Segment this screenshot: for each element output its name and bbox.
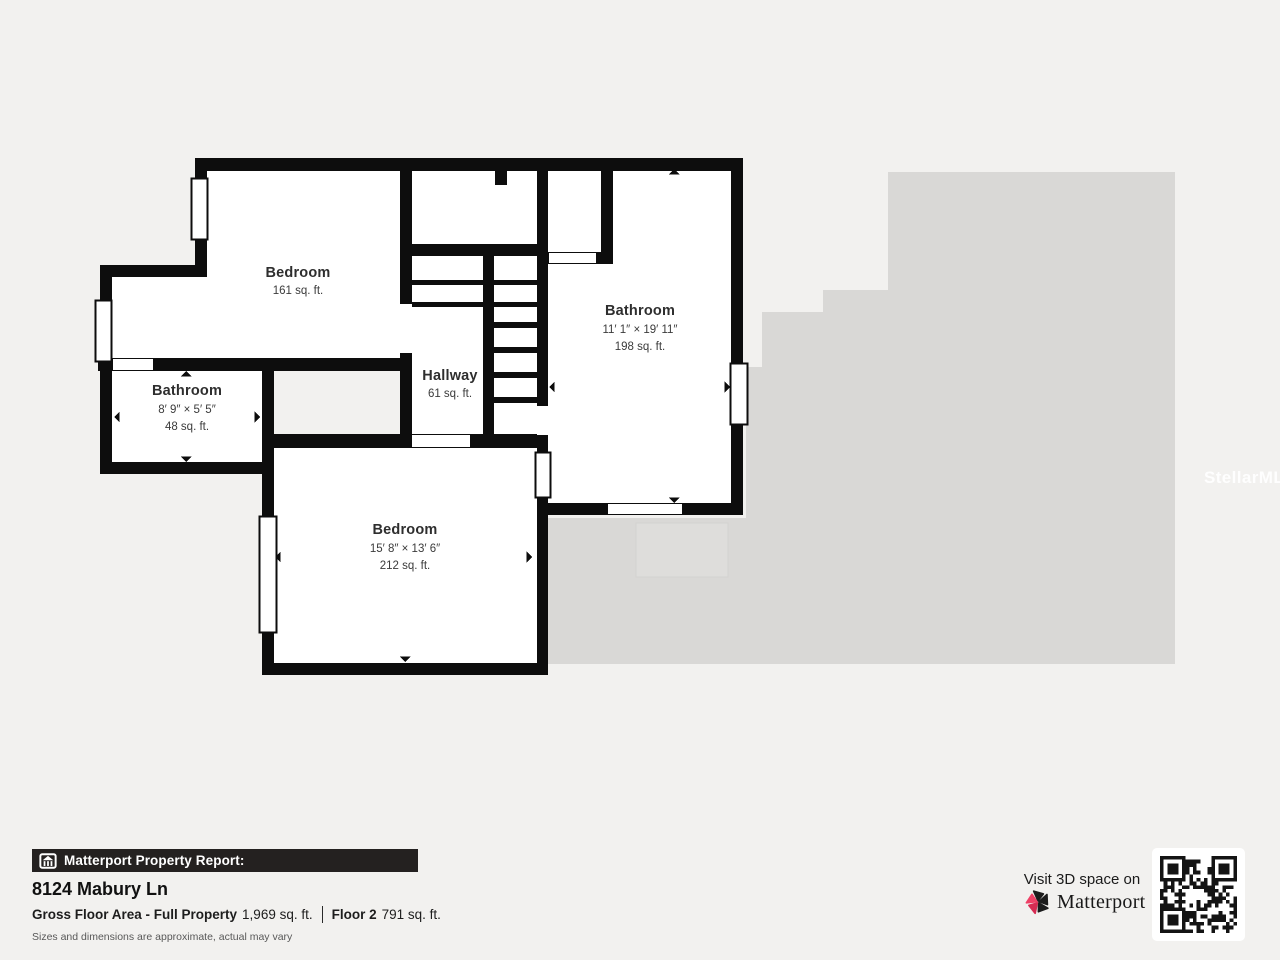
room-label-hallway: Hallway 61 sq. ft. — [422, 367, 477, 402]
gross-area-value: 1,969 sq. ft. — [242, 907, 313, 922]
room-dimensions: 8′ 9″ × 5′ 5″ — [152, 401, 222, 419]
room-name: Bedroom — [265, 264, 330, 283]
qr-code — [1152, 848, 1245, 941]
floor-plan-drawing — [0, 0, 1280, 960]
qr-code-pattern — [1160, 856, 1237, 933]
property-address: 8124 Mabury Ln — [32, 879, 168, 900]
room-area: 61 sq. ft. — [422, 386, 477, 402]
room-label-bedroom-2: Bedroom 15′ 8″ × 13′ 6″ 212 sq. ft. — [370, 521, 440, 574]
room-area: 198 sq. ft. — [602, 339, 677, 355]
room-label-bathroom-1: Bathroom 8′ 9″ × 5′ 5″ 48 sq. ft. — [152, 382, 222, 435]
house-icon — [39, 853, 57, 869]
silhouette-inner-patch — [636, 523, 728, 577]
report-bar-title: Matterport Property Report: — [64, 853, 244, 868]
mls-watermark: StellarMLS — [1204, 468, 1280, 488]
floor-label: Floor 2 — [332, 907, 377, 922]
matterport-wordmark: Matterport — [1057, 891, 1146, 914]
floor-area-stats: Gross Floor Area - Full Property 1,969 s… — [32, 906, 441, 923]
matterport-pinwheel-icon — [1025, 889, 1051, 915]
visit-3d-text: Visit 3D space on — [1023, 871, 1141, 888]
room-label-bathroom-2: Bathroom 11′ 1″ × 19′ 11″ 198 sq. ft. — [602, 302, 677, 355]
gross-area-label: Gross Floor Area - Full Property — [32, 907, 237, 922]
room-area: 161 sq. ft. — [265, 283, 330, 299]
room-label-bedroom-1: Bedroom 161 sq. ft. — [265, 264, 330, 299]
floor-area-value: 791 sq. ft. — [382, 907, 441, 922]
floor-plan-page: Bedroom 161 sq. ft. Bathroom 8′ 9″ × 5′ … — [0, 0, 1280, 960]
disclaimer-text: Sizes and dimensions are approximate, ac… — [32, 931, 292, 943]
room-name: Bathroom — [152, 382, 222, 401]
stats-divider — [322, 906, 323, 923]
room-area: 48 sq. ft. — [152, 419, 222, 435]
matterport-brand: Matterport — [1025, 889, 1146, 915]
room-dimensions: 15′ 8″ × 13′ 6″ — [370, 540, 440, 558]
room-name: Bathroom — [602, 302, 677, 321]
room-name: Bedroom — [370, 521, 440, 540]
report-title-bar: Matterport Property Report: — [32, 849, 418, 872]
room-name: Hallway — [422, 367, 477, 386]
room-area: 212 sq. ft. — [370, 558, 440, 574]
room-dimensions: 11′ 1″ × 19′ 11″ — [602, 321, 677, 339]
